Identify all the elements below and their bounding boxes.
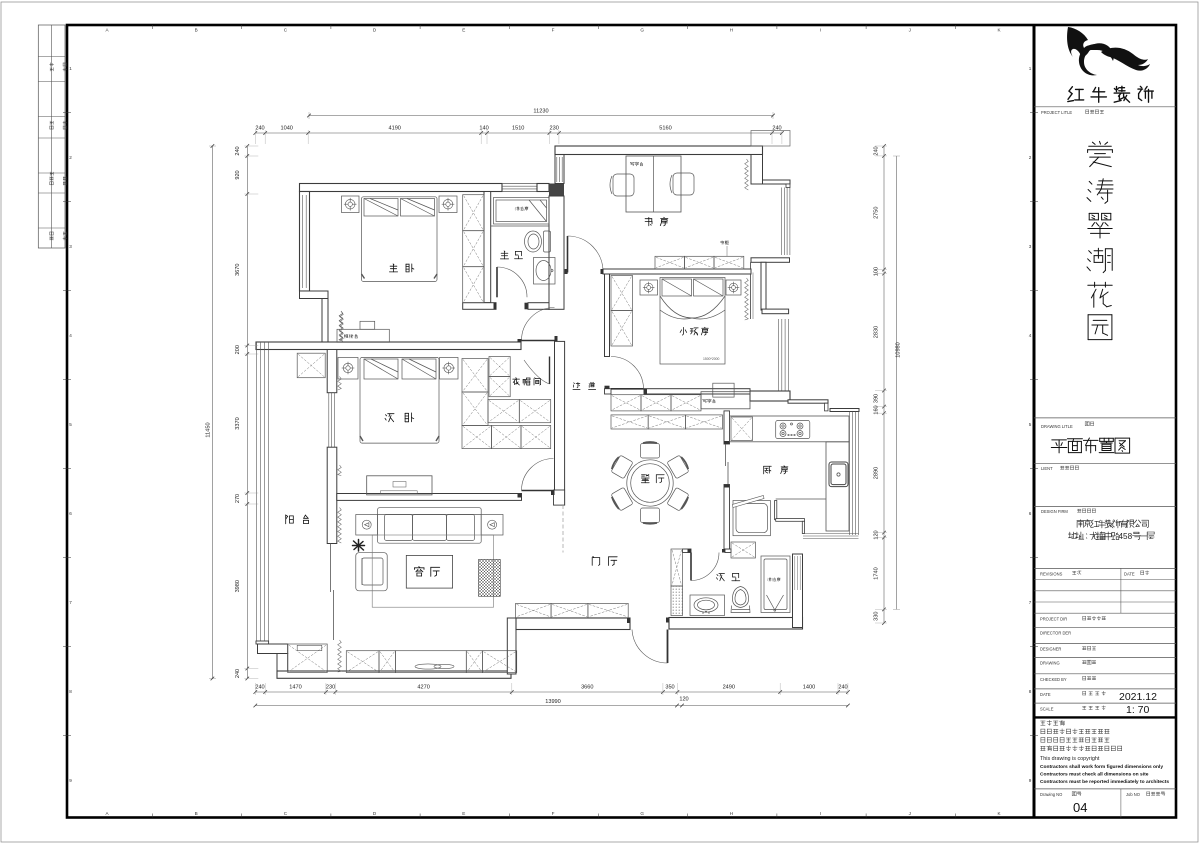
svg-text:3: 3 — [69, 244, 72, 249]
svg-text:1740: 1740 — [874, 567, 880, 579]
svg-text:230: 230 — [326, 685, 335, 691]
svg-text:2021.12: 2021.12 — [1119, 691, 1157, 703]
svg-text:SCALE: SCALE — [1040, 707, 1054, 712]
svg-text:240: 240 — [838, 685, 847, 691]
svg-text:9: 9 — [69, 778, 72, 783]
svg-text:3980: 3980 — [235, 580, 241, 592]
svg-text:I: I — [820, 811, 821, 816]
svg-text:J: J — [909, 811, 911, 816]
svg-text:2: 2 — [1029, 155, 1032, 160]
svg-text:100: 100 — [874, 267, 880, 276]
svg-text:240: 240 — [255, 126, 264, 132]
svg-text:1: 70: 1: 70 — [1126, 704, 1150, 716]
svg-text:2: 2 — [69, 155, 72, 160]
svg-text:DIRECTOR DER: DIRECTOR DER — [1040, 631, 1071, 636]
svg-text:2830: 2830 — [874, 326, 880, 338]
svg-text:7: 7 — [1029, 600, 1032, 605]
svg-text:B: B — [195, 28, 198, 33]
svg-text:3670: 3670 — [235, 263, 241, 275]
svg-text:3: 3 — [1029, 244, 1032, 249]
svg-text:Contractors must check all dim: Contractors must check all dimensions on… — [1040, 772, 1149, 778]
svg-text:G: G — [640, 28, 644, 33]
svg-text:G: G — [640, 811, 644, 816]
svg-text:REVISIONS: REVISIONS — [1040, 572, 1063, 577]
svg-text:CHECKED BY: CHECKED BY — [1040, 677, 1067, 682]
svg-text:120: 120 — [679, 697, 688, 703]
svg-text:1510: 1510 — [512, 126, 524, 132]
svg-text:DRAWING: DRAWING — [1040, 661, 1060, 666]
svg-text:6: 6 — [69, 511, 72, 516]
svg-text:458: 458 — [1119, 532, 1133, 541]
svg-text:240: 240 — [255, 685, 264, 691]
svg-text:F: F — [552, 811, 555, 816]
svg-text:04: 04 — [1073, 800, 1087, 815]
svg-text:390: 390 — [874, 394, 880, 403]
svg-text:LIENT: LIENT — [1041, 466, 1053, 471]
svg-text:Drawing NO: Drawing NO — [1040, 792, 1062, 797]
svg-text:240: 240 — [235, 669, 241, 678]
svg-text:10980: 10980 — [896, 342, 902, 358]
svg-text:13990: 13990 — [545, 699, 561, 705]
svg-text:5: 5 — [69, 422, 72, 427]
svg-text:B: B — [195, 811, 198, 816]
svg-text:1470: 1470 — [289, 685, 301, 691]
svg-text:160: 160 — [874, 405, 880, 414]
svg-text:1040: 1040 — [280, 126, 292, 132]
svg-text:7: 7 — [69, 600, 72, 605]
svg-text:J: J — [909, 28, 911, 33]
svg-text:330: 330 — [874, 612, 880, 621]
svg-text:350: 350 — [665, 685, 674, 691]
svg-text:270: 270 — [235, 494, 241, 503]
svg-text:8: 8 — [69, 689, 72, 694]
svg-text:4: 4 — [1029, 333, 1032, 338]
svg-text:920: 920 — [235, 170, 241, 179]
svg-text:DATE: DATE — [1040, 692, 1051, 697]
svg-text:DESIGNER: DESIGNER — [1040, 647, 1061, 652]
svg-text:3370: 3370 — [235, 417, 241, 429]
svg-text:1: 1 — [69, 66, 72, 71]
svg-text:140: 140 — [479, 126, 488, 132]
svg-text:4: 4 — [69, 333, 72, 338]
svg-text:240: 240 — [874, 146, 880, 155]
svg-text:DESIGN FIRM: DESIGN FIRM — [1041, 509, 1068, 514]
svg-text:I: I — [820, 28, 821, 33]
svg-text:2890: 2890 — [874, 467, 880, 479]
svg-text:1: 1 — [1029, 66, 1032, 71]
svg-text:This drawing is copyright: This drawing is copyright — [1040, 756, 1100, 762]
svg-text:Contractors must be reported i: Contractors must be reported immediately… — [1040, 779, 1169, 785]
svg-text:3660: 3660 — [581, 685, 593, 691]
svg-text:PROJECT LITLE: PROJECT LITLE — [1041, 110, 1072, 115]
svg-text:2750: 2750 — [874, 206, 880, 218]
svg-text:5: 5 — [1029, 422, 1032, 427]
svg-text:4190: 4190 — [388, 126, 400, 132]
svg-text:11230: 11230 — [533, 109, 548, 115]
svg-text:Contractors shall work form fi: Contractors shall work form figured dime… — [1040, 764, 1163, 770]
svg-text:6: 6 — [1029, 511, 1032, 516]
svg-text:11450: 11450 — [206, 422, 212, 437]
svg-text:H: H — [730, 811, 733, 816]
svg-text:230: 230 — [550, 126, 559, 132]
svg-text:PROJECT DIR: PROJECT DIR — [1040, 617, 1067, 622]
svg-text:H: H — [730, 28, 733, 33]
svg-text:Job NO: Job NO — [1126, 792, 1140, 797]
svg-text:200: 200 — [235, 345, 241, 354]
svg-text:5160: 5160 — [659, 126, 671, 132]
svg-text:240: 240 — [772, 126, 781, 132]
svg-text:DATE: DATE — [1124, 572, 1135, 577]
svg-text:1400: 1400 — [803, 685, 815, 691]
svg-text:120: 120 — [874, 530, 880, 539]
svg-text:E: E — [462, 28, 465, 33]
svg-text:240: 240 — [235, 146, 241, 155]
svg-text:DRAWING LITLE: DRAWING LITLE — [1041, 424, 1073, 429]
svg-text:8: 8 — [1029, 689, 1032, 694]
svg-text:9: 9 — [1029, 778, 1032, 783]
svg-text:E: E — [462, 811, 465, 816]
svg-text:F: F — [552, 28, 555, 33]
svg-text:4270: 4270 — [417, 685, 429, 691]
svg-text:2490: 2490 — [723, 685, 735, 691]
svg-text:1500*2000: 1500*2000 — [703, 357, 720, 361]
